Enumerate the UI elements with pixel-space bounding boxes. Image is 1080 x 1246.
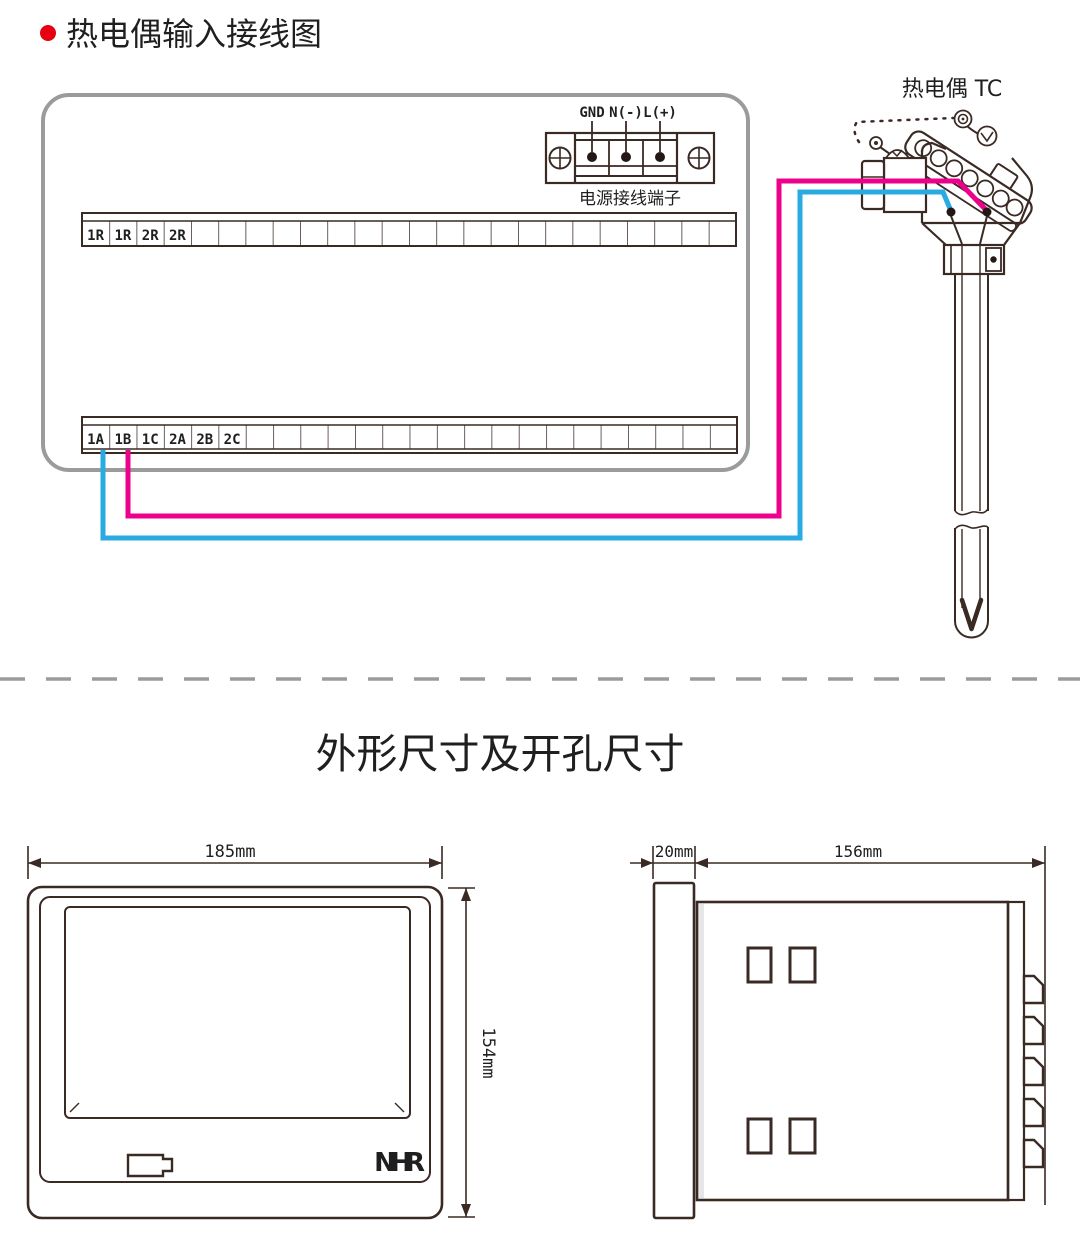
lower-cell-label: 2C — [224, 432, 241, 448]
lower-cell-label: 2B — [196, 432, 213, 448]
power-pin-leader-l: L(+) — [643, 105, 677, 121]
side-body — [697, 902, 1008, 1200]
tc-terminal-dot-right — [983, 208, 992, 217]
terminal-bumps — [1024, 976, 1043, 1167]
chain-dotted-line — [855, 118, 953, 142]
upper-cell-label: 1R — [114, 228, 131, 244]
thermocouple-illustration: 热电偶 TC — [855, 77, 1044, 638]
cap-dome-screw-icon — [978, 127, 997, 146]
front-height-dimension: 154mm — [448, 888, 498, 1217]
power-terminal-dot-n — [621, 152, 631, 162]
dimension-title: 外形尺寸及开孔尺寸 — [316, 730, 685, 778]
upper-cell-label: 1R — [87, 228, 104, 244]
front-view-drawing: N H R 185mm 154mm — [28, 842, 498, 1218]
mounting-clip-holes — [748, 948, 815, 1153]
lower-cell-label: 1C — [142, 432, 159, 448]
tube-tip-outline — [955, 527, 988, 638]
bullet-icon — [40, 25, 56, 41]
side-length-label: 156mm — [834, 842, 882, 861]
tc-terminal-dot-left — [947, 208, 956, 217]
dimension-section: 外形尺寸及开孔尺寸 N H R 185mm — [28, 730, 1045, 1218]
diagram-canvas: 热电偶输入接线图 GND N(-) L(+) 电源接线端子 — [0, 0, 1080, 1246]
power-terminal-block: GND N(-) L(+) 电源接线端子 — [546, 105, 714, 209]
lower-terminal-strip: 1A 1B 1C 2A 2B 2C — [82, 417, 737, 453]
side-bezel — [654, 883, 694, 1218]
collar-union — [944, 245, 1004, 274]
upper-cell-label: 2R — [142, 228, 159, 244]
front-height-label: 154mm — [478, 1027, 498, 1078]
screen-corner-ticks — [70, 1103, 404, 1112]
sensor-label: 热电偶 TC — [902, 77, 1003, 102]
tube-break-lower — [955, 525, 988, 529]
side-depth-label: 20mm — [655, 842, 694, 861]
power-pin-label-gnd: GND — [579, 105, 604, 121]
lower-cell-label: 1A — [87, 432, 104, 448]
terminal-stems — [951, 216, 987, 244]
hex-nut — [862, 161, 884, 209]
side-view-drawing: 20mm 156mm — [630, 842, 1045, 1218]
power-caption: 电源接线端子 — [579, 189, 681, 209]
power-leader-lines — [592, 121, 660, 152]
lower-cell-label: 1B — [114, 432, 131, 448]
front-bezel — [40, 897, 430, 1182]
front-width-dimension: 185mm — [28, 842, 442, 879]
nhr-logo: N H R — [374, 1148, 425, 1178]
power-terminal-dot-l — [655, 152, 665, 162]
manual-page: 热电偶输入接线图 GND N(-) L(+) 电源接线端子 — [0, 0, 1080, 1246]
probe-tip-chevron-icon — [962, 600, 981, 629]
upper-terminal-strip: 1R 1R 2R 2R — [82, 213, 736, 246]
logo-letter-r: R — [405, 1148, 425, 1178]
side-dimensions: 20mm 156mm — [630, 842, 1045, 1205]
probe-tube — [955, 245, 988, 638]
front-width-label: 185mm — [204, 842, 255, 862]
side-rear-strip — [1008, 902, 1024, 1200]
wiring-title: 热电偶输入接线图 — [66, 15, 322, 53]
power-terminal-dot-gnd — [587, 152, 597, 162]
front-screen — [65, 907, 410, 1118]
front-slot — [128, 1155, 172, 1176]
lower-cell-label: 2A — [169, 432, 186, 448]
tube-break-upper — [955, 509, 988, 515]
power-pin-label-n: N(-) — [609, 105, 643, 121]
upper-cell-label: 2R — [169, 228, 186, 244]
wiring-section: 热电偶输入接线图 GND N(-) L(+) 电源接线端子 — [40, 15, 1043, 638]
